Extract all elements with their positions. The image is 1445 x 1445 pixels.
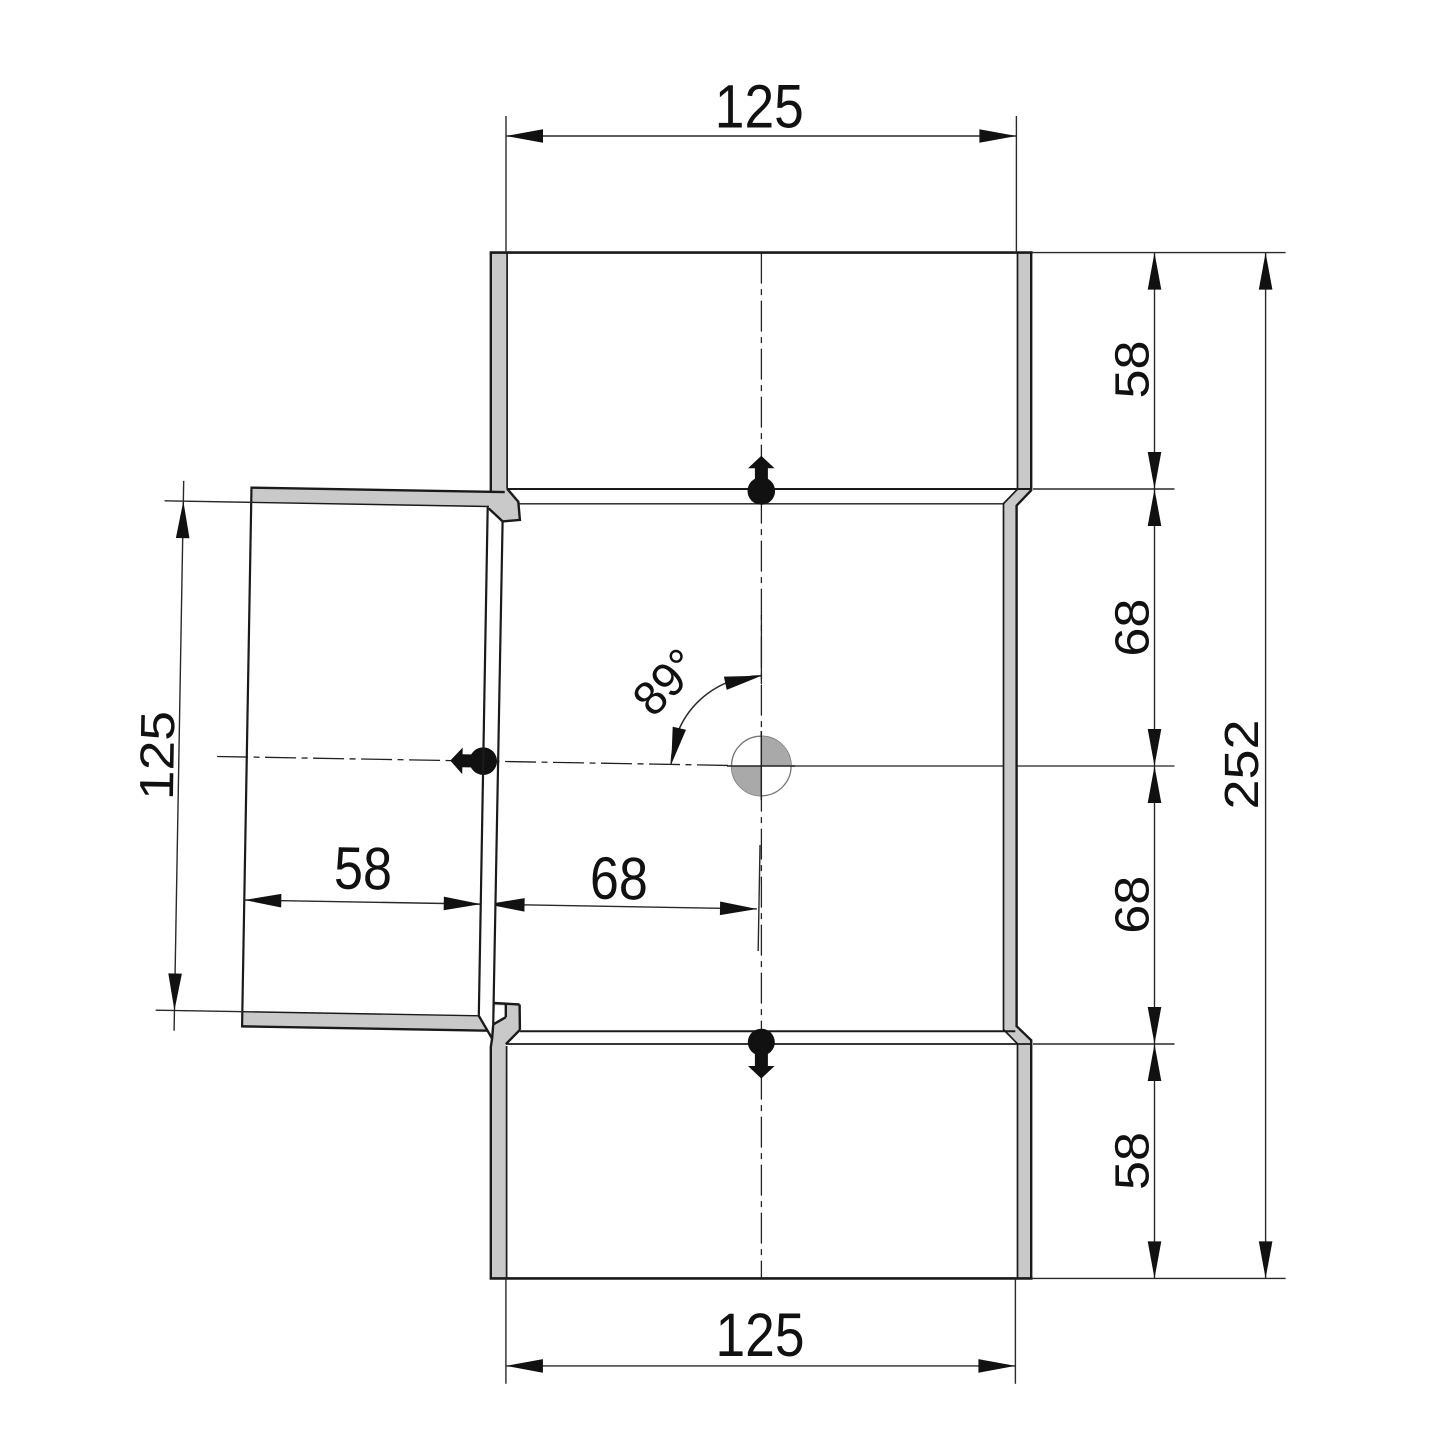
svg-text:252: 252 [1216,720,1269,810]
svg-text:68: 68 [1107,876,1160,934]
svg-text:68: 68 [589,845,648,913]
svg-text:125: 125 [715,73,804,141]
svg-text:58: 58 [1107,1132,1160,1190]
svg-text:68: 68 [1107,599,1160,657]
svg-text:125: 125 [716,1301,805,1369]
svg-text:58: 58 [1107,341,1160,399]
svg-text:58: 58 [334,835,393,903]
svg-text:125: 125 [131,711,186,801]
